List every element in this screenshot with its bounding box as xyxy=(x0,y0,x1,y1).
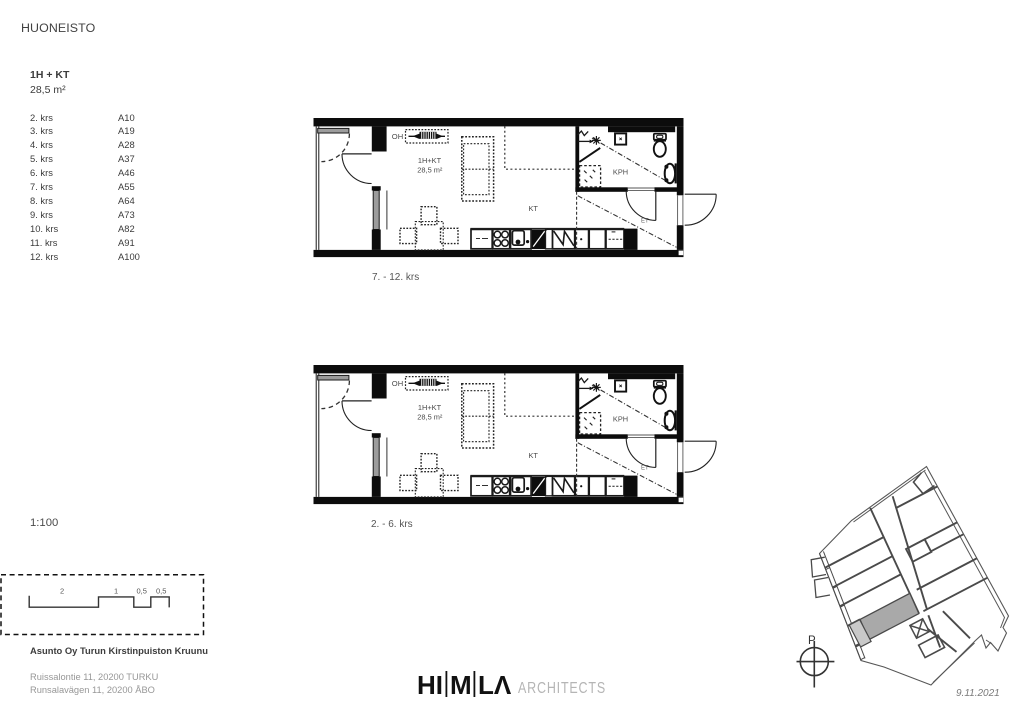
svg-text:ARCHITECTS: ARCHITECTS xyxy=(518,680,606,697)
svg-text:0,5: 0,5 xyxy=(137,587,147,596)
svg-text:ET: ET xyxy=(641,218,649,224)
svg-text:KT: KT xyxy=(529,204,539,213)
svg-text:2: 2 xyxy=(60,587,64,596)
svg-text:1H+KT: 1H+KT xyxy=(418,156,442,165)
svg-text:0,5: 0,5 xyxy=(156,587,166,596)
svg-text:28,5 m²: 28,5 m² xyxy=(417,166,443,175)
svg-text:2. - 6. krs: 2. - 6. krs xyxy=(371,519,413,530)
svg-text:P: P xyxy=(808,635,816,647)
svg-text:OH: OH xyxy=(392,132,403,141)
svg-text:7. - 12. krs: 7. - 12. krs xyxy=(372,272,419,283)
svg-text:HI: HI xyxy=(417,670,443,700)
svg-text:1: 1 xyxy=(114,587,118,596)
svg-text:M: M xyxy=(450,670,472,700)
svg-text:LΛ: LΛ xyxy=(478,670,512,700)
svg-text:KPH: KPH xyxy=(613,167,628,176)
